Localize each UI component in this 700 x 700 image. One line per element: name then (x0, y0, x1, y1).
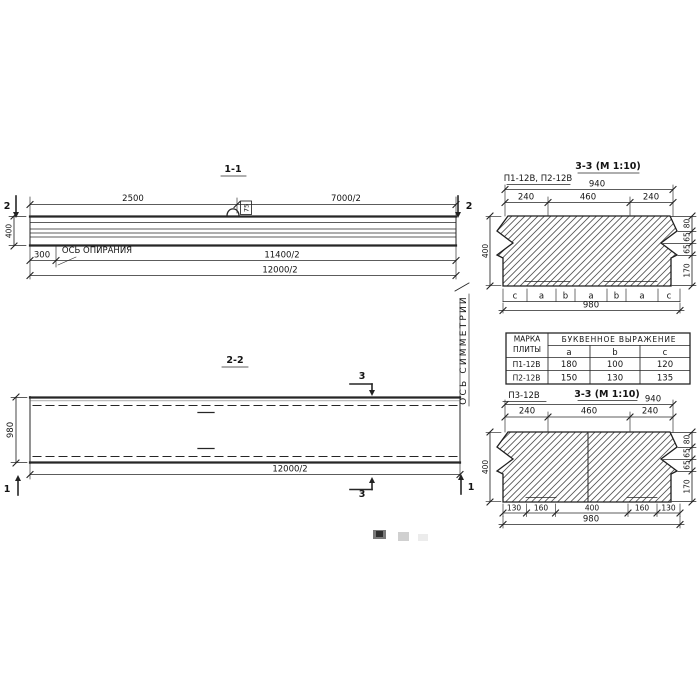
blueprint-canvas: 1-1 2500 7000/2 2 2 (0, 0, 700, 700)
dim-940: 940 (589, 180, 605, 190)
dim-160-left: 160 (534, 504, 549, 513)
dim-160-right: 160 (635, 504, 650, 513)
dim-12000-2: 12000/2 (262, 266, 297, 276)
beam-elevation (30, 216, 456, 246)
drawing-sheet: 1-1 2500 7000/2 2 2 (0, 0, 700, 700)
dim-460: 460 (580, 193, 596, 203)
table-row: П1-12В 180 100 120 (513, 360, 674, 370)
cross-section-p3: П3-12В 3-3 (М 1:10) 940 240 460 240 (481, 389, 696, 528)
dim-980: 980 (6, 422, 16, 438)
support-axis-leader (58, 257, 76, 265)
table-col-c: c (663, 348, 668, 358)
arrow-up-icon (15, 475, 21, 481)
dim-240-left: 240 (519, 407, 535, 417)
slab-cross-section-body (497, 216, 677, 286)
dim-65b: 65 (683, 244, 692, 254)
cut-marker-1-left: 1 (4, 475, 21, 495)
letter-c1: c (513, 292, 518, 302)
dim-400-cs1: 400 (481, 244, 490, 259)
dim-980-cs3: 980 (583, 515, 599, 525)
letter-b1: b (563, 292, 568, 302)
dim-170: 170 (683, 479, 692, 494)
table-header-span: БУКВЕННОЕ ВЫРАЖЕНИЕ (562, 335, 677, 344)
dim-65a: 65 (683, 232, 692, 242)
dim-2500: 2500 (122, 194, 144, 204)
dim-240-left: 240 (518, 193, 534, 203)
dim-400-mid: 400 (585, 504, 600, 513)
dim-170: 170 (683, 263, 692, 278)
cut-marker-3-top: 3 (350, 371, 375, 396)
row1-mark: П1-12В (513, 360, 541, 369)
loop-mark-label: 75 (243, 204, 251, 212)
artifact-blob (418, 534, 428, 541)
cut-marker-2-left: 2 (4, 196, 19, 218)
cs3-title: 3-3 (М 1:10) (574, 389, 640, 400)
dim-65a: 65 (683, 448, 692, 458)
section-2-2-title: 2-2 (226, 355, 243, 366)
row1-a: 180 (561, 360, 577, 370)
section-2-2-view: 2-2 3 3 (4, 283, 475, 500)
slab-plan-outline (30, 397, 460, 464)
cut-marker-3-bottom: 3 (350, 477, 375, 500)
letter-a1: a (539, 292, 544, 302)
table-row: П2-12В 150 130 135 (513, 374, 674, 384)
cut-2-label: 2 (4, 201, 11, 212)
dim-940-cs3: 940 (645, 395, 661, 405)
dimension-line-12000 (27, 272, 460, 279)
slab-cross-section-body (497, 432, 677, 502)
section-1-1-view: 1-1 2500 7000/2 2 2 (4, 164, 473, 279)
row2-mark: П2-12В (513, 374, 541, 383)
section-1-1-title: 1-1 (224, 164, 241, 175)
row2-b: 130 (607, 374, 623, 384)
arrow-down-icon (369, 390, 375, 396)
table-col-b: b (612, 348, 617, 358)
length-dimension (27, 464, 464, 479)
table-header-marka: МАРКА (514, 335, 541, 344)
letter-a3: a (639, 292, 644, 302)
cut-1-label: 1 (4, 484, 11, 495)
dim-7000-2: 7000/2 (331, 194, 361, 204)
dim-300: 300 (34, 251, 50, 261)
cross-section-p1-p2: 3-3 (М 1:10) П1-12В, П2-12В 940 240 460 … (481, 161, 696, 314)
row2-a: 150 (561, 374, 577, 384)
cs1-title: 3-3 (М 1:10) (575, 161, 641, 172)
dim-130-left: 130 (507, 504, 522, 513)
dim-240-right: 240 (642, 407, 658, 417)
artifact-blob (398, 532, 409, 541)
dim-240-right: 240 (643, 193, 659, 203)
cut-3-label: 3 (359, 371, 366, 382)
cut-1-label: 1 (468, 482, 475, 493)
table-header-plity: ПЛИТЫ (513, 345, 541, 354)
letter-table: МАРКА ПЛИТЫ БУКВЕННОЕ ВЫРАЖЕНИЕ a b c П1… (506, 333, 690, 384)
row1-c: 120 (657, 360, 673, 370)
cut-marker-1-right: 1 (458, 474, 474, 494)
dim-80: 80 (683, 435, 692, 445)
support-axis-label: ОСЬ ОПИРАНИЯ (62, 246, 132, 256)
dim-130-right: 130 (661, 504, 676, 513)
artifact-blob (376, 531, 383, 537)
dim-400-cs3: 400 (481, 460, 490, 475)
dim-12000-2-plan: 12000/2 (272, 465, 307, 475)
symmetry-axis-label: ОСЬ СИММЕТРИИ (459, 295, 469, 405)
cs1-label: П1-12В, П2-12В (504, 174, 573, 184)
dim-80: 80 (683, 219, 692, 229)
cut-3-label: 3 (359, 489, 366, 500)
dim-460: 460 (581, 407, 597, 417)
dim-980-cs1: 980 (583, 301, 599, 311)
table-col-a: a (566, 348, 571, 358)
dim-65b: 65 (683, 460, 692, 470)
row1-b: 100 (607, 360, 623, 370)
arrow-up-icon (369, 477, 375, 483)
dim-11400-2: 11400/2 (264, 251, 299, 261)
letter-b2: b (614, 292, 619, 302)
cut-2-label: 2 (466, 201, 473, 212)
row2-c: 135 (657, 374, 673, 384)
cs3-label: П3-12В (508, 391, 540, 401)
scan-artifacts (373, 530, 428, 541)
letter-c2: c (667, 292, 672, 302)
cut-marker-2-right: 2 (455, 196, 472, 218)
symmetry-axis-leader (455, 283, 469, 291)
lifting-loop: 75 (227, 201, 252, 216)
dim-400: 400 (5, 224, 14, 239)
